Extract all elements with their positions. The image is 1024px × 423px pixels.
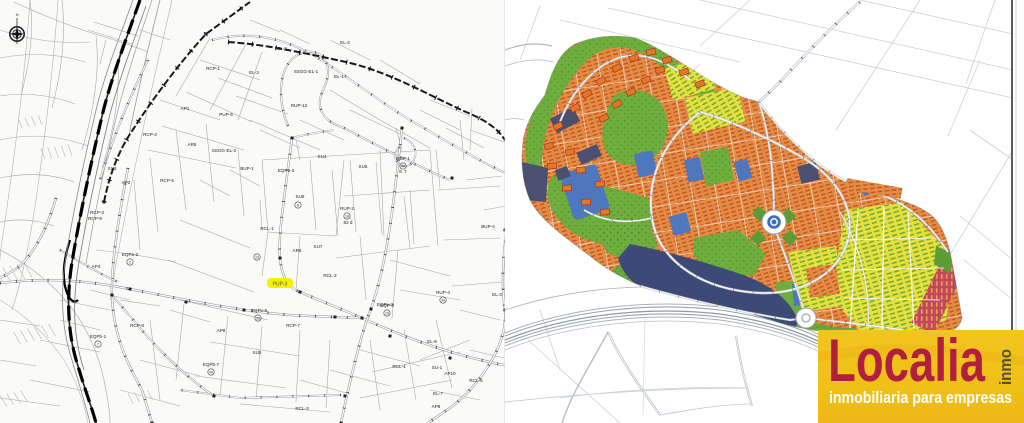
svg-text:RCP-9: RCP-9 — [88, 216, 102, 221]
svg-text:Localia: Localia — [828, 327, 985, 394]
svg-text:PUP-6: PUP-6 — [219, 112, 233, 117]
svg-text:EL-3: EL-3 — [492, 292, 502, 297]
svg-text:SSGG-EL-1: SSGG-EL-1 — [294, 69, 319, 74]
svg-text:RCL-3: RCL-3 — [295, 406, 309, 411]
svg-text:RCL-4: RCL-4 — [392, 364, 406, 369]
svg-text:30: 30 — [256, 317, 260, 321]
svg-text:18: 18 — [345, 215, 349, 219]
svg-text:8: 8 — [297, 204, 299, 208]
svg-text:RCP-1: RCP-1 — [206, 66, 220, 71]
svg-text:EQPa-2: EQPa-2 — [122, 252, 139, 257]
svg-text:AR6: AR6 — [293, 248, 302, 253]
svg-text:RCP-5: RCP-5 — [160, 178, 174, 183]
svg-text:AP1: AP1 — [181, 106, 190, 111]
svg-text:EQPv-8: EQPv-8 — [251, 308, 268, 313]
svg-text:40: 40 — [209, 371, 213, 375]
svg-text:N: N — [16, 12, 19, 17]
svg-text:PUP-3: PUP-3 — [273, 282, 288, 288]
svg-text:EQPo-3: EQPo-3 — [278, 168, 295, 173]
svg-text:RCL-5: RCL-5 — [469, 378, 483, 383]
svg-text:RCL-2: RCL-2 — [323, 273, 337, 278]
svg-text:RUP-12: RUP-12 — [291, 103, 308, 108]
svg-text:EQPb-1: EQPb-1 — [90, 334, 107, 339]
svg-text:EL-3: EL-3 — [249, 70, 259, 75]
svg-text:44: 44 — [401, 165, 405, 169]
svg-text:RCP-7: RCP-7 — [286, 323, 300, 328]
svg-text:RUP-2: RUP-2 — [340, 206, 354, 211]
svg-text:BUP-4: BUP-4 — [481, 224, 495, 229]
svg-text:EL-7: EL-7 — [433, 391, 443, 396]
svg-text:AP4: AP4 — [92, 264, 101, 269]
svg-text:SU6: SU6 — [296, 194, 305, 199]
svg-text:RCP-3: RCP-3 — [90, 210, 104, 215]
svg-text:82 d: 82 d — [344, 220, 353, 225]
svg-text:AR5: AR5 — [188, 142, 197, 147]
svg-text:EL-2: EL-2 — [277, 46, 287, 51]
svg-text:inmo: inmo — [996, 349, 1015, 385]
svg-text:RCP-2: RCP-2 — [143, 132, 157, 137]
svg-text:RUP-1: RUP-1 — [396, 156, 410, 161]
svg-text:SU4: SU4 — [318, 154, 327, 159]
svg-text:19: 19 — [385, 312, 389, 316]
svg-text:EL-8: EL-8 — [427, 339, 437, 344]
svg-text:2: 2 — [129, 261, 131, 265]
svg-text:AP8: AP8 — [432, 404, 441, 409]
svg-text:10: 10 — [255, 256, 259, 260]
svg-text:AP10: AP10 — [444, 371, 456, 376]
svg-text:EQPb-7: EQPb-7 — [203, 362, 220, 367]
svg-text:AP2: AP2 — [122, 180, 131, 185]
svg-text:SSGG-EL-2: SSGG-EL-2 — [212, 148, 237, 153]
svg-text:EQPv-3: EQPv-3 — [377, 302, 394, 307]
svg-text:RCP-8: RCP-8 — [130, 323, 144, 328]
svg-text:EL-2: EL-2 — [340, 40, 350, 45]
svg-text:7: 7 — [97, 343, 99, 347]
svg-text:AP9: AP9 — [217, 328, 226, 333]
svg-text:EL-1: EL-1 — [334, 74, 344, 79]
svg-text:SU3: SU3 — [108, 166, 117, 171]
svg-text:BUP-1: BUP-1 — [240, 166, 254, 171]
svg-text:8. 7: 8. 7 — [399, 169, 407, 174]
svg-text:SU-1: SU-1 — [432, 365, 443, 370]
svg-text:SU5: SU5 — [253, 350, 262, 355]
svg-text:34: 34 — [441, 299, 445, 303]
svg-text:SU5: SU5 — [359, 164, 368, 169]
svg-text:RCL-1: RCL-1 — [260, 226, 274, 231]
svg-text:SU7: SU7 — [314, 244, 323, 249]
svg-text:RUP-4: RUP-4 — [436, 290, 450, 295]
svg-text:inmobiliaria para empresas: inmobiliaria para empresas — [829, 389, 1012, 407]
